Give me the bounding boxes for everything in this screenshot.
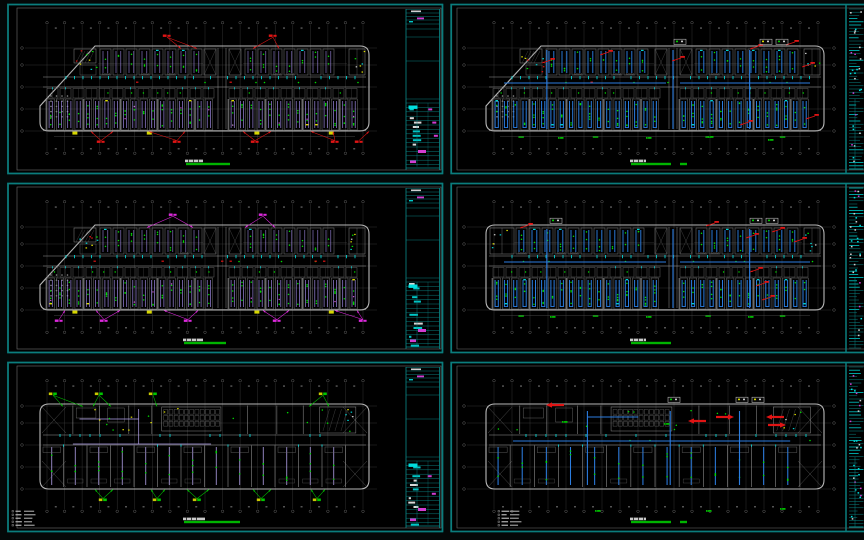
- cad-workspace: [0, 0, 864, 540]
- drawing-sheet-3[interactable]: [7, 182, 444, 354]
- drawing-sheet-5[interactable]: [7, 361, 444, 533]
- floor-plan-drawing-6: [450, 361, 864, 533]
- drawing-sheet-1[interactable]: [7, 3, 444, 175]
- drawing-sheet-2[interactable]: [450, 3, 864, 175]
- floor-plan-drawing-5: [7, 361, 444, 533]
- floor-plan-drawing-3: [7, 182, 444, 354]
- drawing-sheet-4[interactable]: [450, 182, 864, 354]
- drawing-sheet-6[interactable]: [450, 361, 864, 533]
- floor-plan-drawing-2: [450, 3, 864, 175]
- floor-plan-drawing-1: [7, 3, 444, 175]
- floor-plan-drawing-4: [450, 182, 864, 354]
